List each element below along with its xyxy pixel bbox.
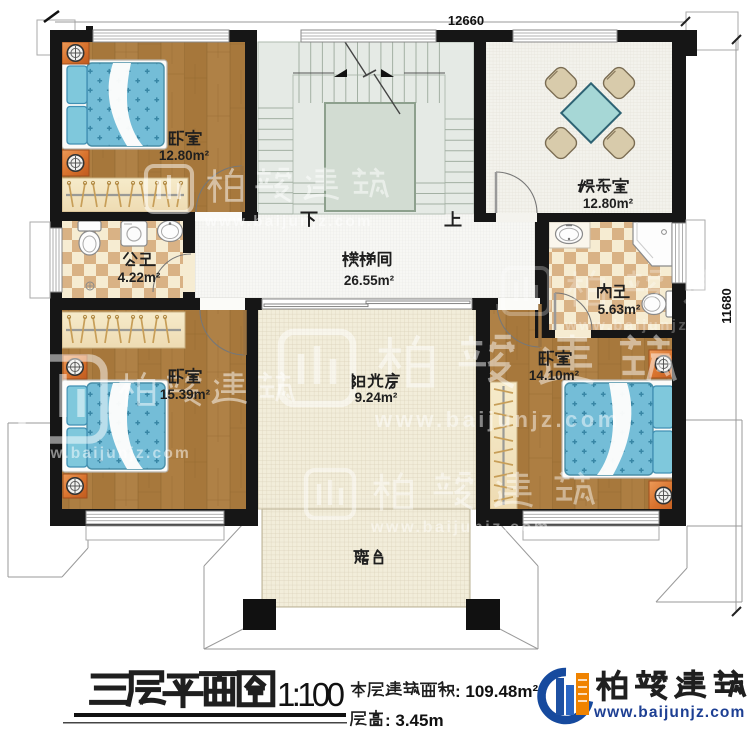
- svg-text:1:100: 1:100: [277, 676, 345, 713]
- svg-text:www.baijunjz.com: www.baijunjz.com: [564, 317, 733, 334]
- svg-text:: 3.45m: : 3.45m: [385, 711, 444, 730]
- svg-text:www.baijunjz.com: www.baijunjz.com: [204, 213, 373, 230]
- svg-text:: 109.48m²: : 109.48m²: [455, 682, 538, 701]
- svg-text:5.63m²: 5.63m²: [598, 302, 641, 317]
- svg-text:12660: 12660: [448, 13, 484, 28]
- svg-text:4.22m²: 4.22m²: [118, 270, 161, 285]
- svg-text:26.55m²: 26.55m²: [344, 273, 395, 288]
- svg-text:12.80m²: 12.80m²: [159, 148, 210, 163]
- svg-text:www.baijunjz.com: www.baijunjz.com: [374, 407, 621, 432]
- svg-text:11680: 11680: [719, 288, 734, 323]
- svg-text:9.24m²: 9.24m²: [355, 390, 398, 405]
- svg-text:14.10m²: 14.10m²: [529, 368, 580, 383]
- svg-text:15.39m²: 15.39m²: [160, 387, 211, 402]
- svg-text:12.80m²: 12.80m²: [583, 196, 634, 211]
- svg-text:www.baijunjz.com: www.baijunjz.com: [370, 519, 551, 536]
- svg-text:www.baijunjz.com: www.baijunjz.com: [21, 445, 191, 462]
- svg-text:www.baijunjz.com: www.baijunjz.com: [593, 704, 745, 721]
